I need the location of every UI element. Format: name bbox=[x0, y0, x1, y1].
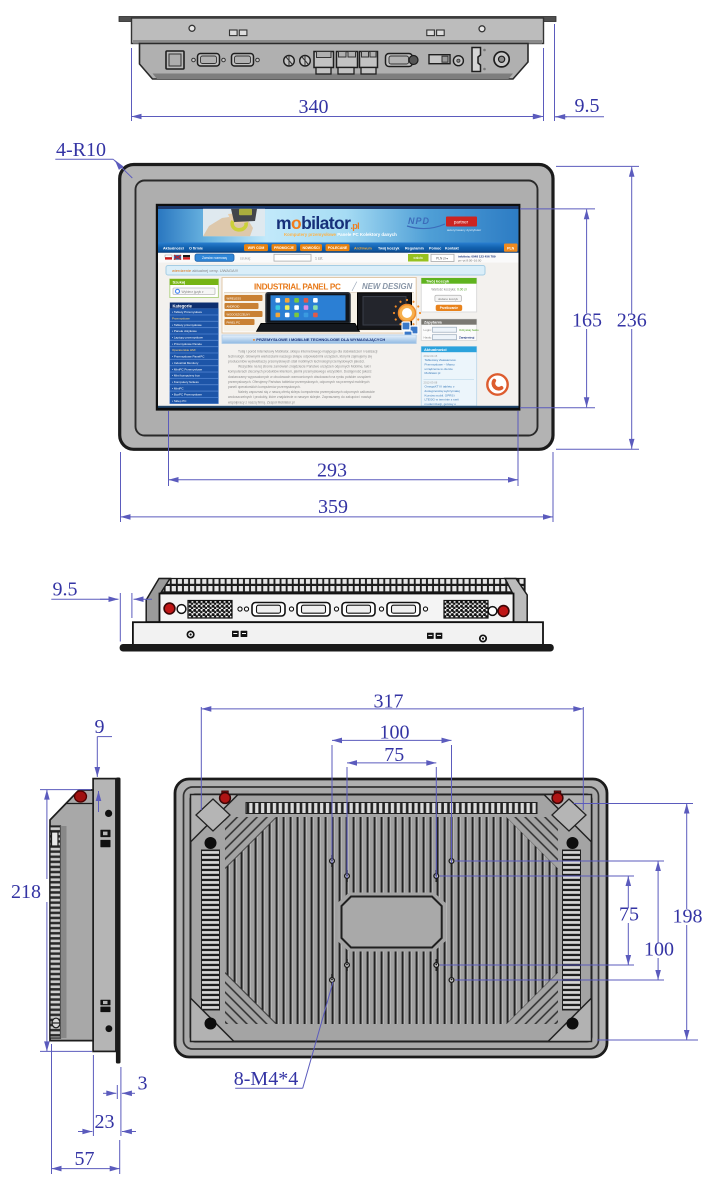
svg-text:75: 75 bbox=[384, 744, 404, 766]
svg-text:4-R10: 4-R10 bbox=[56, 139, 106, 161]
svg-text:WODOSZCZELNY: WODOSZCZELNY bbox=[227, 312, 251, 316]
svg-text:waluta: waluta bbox=[413, 256, 422, 260]
svg-text:100: 100 bbox=[380, 722, 410, 744]
svg-text:ANDROID: ANDROID bbox=[227, 304, 240, 308]
svg-text:• Tablety przemysłowe: • Tablety przemysłowe bbox=[172, 323, 202, 327]
svg-text:PLN: PLN bbox=[507, 246, 515, 250]
svg-text:Zarejestruj: Zarejestruj bbox=[459, 335, 475, 339]
svg-text:● PRZEMYSŁOWE I MOBILNE TECHNO: ● PRZEMYSŁOWE I MOBILNE TECHNOLOGIE DLA … bbox=[253, 337, 386, 342]
svg-text:• BoxPC Przemysłowe: • BoxPC Przemysłowe bbox=[172, 393, 202, 397]
svg-text:Kontakt: Kontakt bbox=[445, 246, 459, 250]
svg-text:Mobilator.pl: Mobilator.pl bbox=[425, 371, 441, 375]
svg-text:• MiniPC: • MiniPC bbox=[172, 386, 184, 390]
svg-text:Wszystkie na tej stronie zamów: Wszystkie na tej stronie zamówień znajdz… bbox=[238, 365, 371, 369]
svg-text:Aktualności: Aktualności bbox=[424, 347, 447, 352]
svg-text:198: 198 bbox=[673, 906, 703, 928]
svg-text:NPD: NPD bbox=[408, 216, 430, 226]
svg-text:Kursów mobil. GPRS i: Kursów mobil. GPRS i bbox=[425, 393, 456, 397]
svg-text:165: 165 bbox=[572, 309, 602, 331]
svg-text:PROMOCJE: PROMOCJE bbox=[274, 246, 295, 250]
svg-text:Wartość koszyka: 0.00 zł: Wartość koszyka: 0.00 zł bbox=[431, 288, 466, 292]
svg-text:dostarczamy wyposażonych w obu: dostarczamy wyposażonych w obudowach wzm… bbox=[228, 375, 371, 379]
svg-text:WIFI COM: WIFI COM bbox=[248, 246, 265, 250]
svg-text:359: 359 bbox=[318, 496, 348, 518]
svg-text:INDUSTRIAL PANEL PC: INDUSTRIAL PANEL PC bbox=[254, 283, 341, 292]
svg-text:236: 236 bbox=[617, 309, 647, 331]
svg-text:Aktualności: Aktualności bbox=[163, 246, 184, 250]
svg-text:WIRELESS: WIRELESS bbox=[227, 296, 242, 300]
svg-text:• MiniPC Przemysłowe: • MiniPC Przemysłowe bbox=[172, 367, 203, 371]
svg-text:317: 317 bbox=[374, 691, 404, 713]
svg-text:Pomoc: Pomoc bbox=[429, 246, 441, 250]
svg-text:• Laptopy przemysłowe: • Laptopy przemysłowe bbox=[172, 336, 203, 340]
svg-text:Operatorskie HMI: Operatorskie HMI bbox=[172, 348, 196, 352]
svg-text:• Panele dotykowe: • Panele dotykowe bbox=[172, 329, 197, 333]
svg-text:218: 218 bbox=[11, 881, 41, 903]
svg-text:1 szt.: 1 szt. bbox=[315, 256, 323, 260]
svg-text:Przeliczanie: Przeliczanie bbox=[440, 306, 458, 310]
svg-text:komputerach zleconych produktó: komputerach zleconych produktów klientom… bbox=[228, 370, 372, 374]
svg-text:Tutaj i poród Internetowy Mobi: Tutaj i poród Internetowy Mobilator, skl… bbox=[238, 349, 378, 353]
svg-text:modernizacji, gotowy o: modernizacji, gotowy o bbox=[425, 402, 457, 406]
svg-text:57: 57 bbox=[75, 1148, 95, 1170]
svg-text:Login:: Login: bbox=[424, 328, 432, 332]
svg-text:• Przemysłowe Panele: • Przemysłowe Panele bbox=[172, 342, 202, 346]
svg-text:urządzenia w ofercie: urządzenia w ofercie bbox=[425, 367, 454, 371]
svg-text:LTE/3G w terminie z serii: LTE/3G w terminie z serii bbox=[425, 398, 460, 402]
svg-text:Twój koszyk: Twój koszyk bbox=[426, 279, 450, 284]
svg-text:8-M4*4: 8-M4*4 bbox=[234, 1068, 298, 1090]
svg-text:dostępnością wytrzymałej: dostępnością wytrzymałej bbox=[425, 389, 461, 393]
svg-text:pn–pt 8:00–16:00: pn–pt 8:00–16:00 bbox=[458, 258, 482, 262]
svg-text:9.5: 9.5 bbox=[575, 95, 600, 117]
svg-text:75: 75 bbox=[619, 904, 639, 926]
svg-text:Szukaj: Szukaj bbox=[173, 280, 186, 285]
svg-text:PANEL PC: PANEL PC bbox=[227, 320, 241, 324]
svg-text:wierdzenie aktualnej ceny. UWA: wierdzenie aktualnej ceny. UWAGA!!! bbox=[172, 268, 238, 273]
svg-text:Tabletowy Zaawansow.: Tabletowy Zaawansow. bbox=[425, 358, 457, 362]
svg-text:340: 340 bbox=[299, 96, 329, 118]
svg-text:• Przemysłowe PanelPC: • Przemysłowe PanelPC bbox=[172, 355, 205, 359]
svg-text:Wybierz język ▾: Wybierz język ▾ bbox=[182, 290, 205, 294]
svg-text:NEW DESIGN: NEW DESIGN bbox=[362, 282, 413, 291]
svg-text:POLECANE: POLECANE bbox=[328, 246, 348, 250]
svg-text:3: 3 bbox=[138, 1073, 148, 1095]
svg-text:szukaj:: szukaj: bbox=[240, 256, 251, 260]
svg-text:wodoszczelnych i produkty, któ: wodoszczelnych i produkty, które znajdzi… bbox=[228, 395, 372, 399]
svg-text:Kategorie: Kategorie bbox=[173, 303, 193, 308]
svg-text:• Mini komputery box: • Mini komputery box bbox=[172, 374, 200, 378]
svg-text:Archiwum: Archiwum bbox=[354, 246, 373, 250]
svg-text:293: 293 bbox=[317, 459, 347, 481]
svg-text:9: 9 bbox=[95, 716, 105, 738]
svg-text:Regulamin: Regulamin bbox=[405, 246, 425, 250]
svg-text:technologii. Głównymi wartości: technologii. Głównymi wartościami naszeg… bbox=[228, 354, 372, 358]
svg-text:• Sklep PC: • Sklep PC bbox=[172, 399, 187, 403]
svg-text:Twój koszyk: Twój koszyk bbox=[378, 246, 400, 250]
svg-text:PLN zł ▾: PLN zł ▾ bbox=[436, 256, 448, 260]
svg-text:Zapytania: Zapytania bbox=[424, 321, 443, 325]
svg-text:OmegaXT III tabletu z: OmegaXT III tabletu z bbox=[425, 385, 455, 389]
svg-text:paneli operatorskich komputeró: paneli operatorskich komputerów przemysł… bbox=[228, 385, 301, 389]
svg-text:• Tablety Przemysłowe: • Tablety Przemysłowe bbox=[172, 310, 202, 314]
svg-text:producentów wyświetlaczy przem: producentów wyświetlaczy przemysłowych s… bbox=[228, 360, 365, 364]
svg-text:Należy zapoznać się z naszą of: Należy zapoznać się z naszą ofertą sklep… bbox=[238, 390, 375, 394]
svg-text:• Industrial Monitory: • Industrial Monitory bbox=[172, 361, 199, 365]
svg-text:współpracy z naszą firmą. Zesp: współpracy z naszą firmą. Zespół Mobilat… bbox=[228, 400, 295, 404]
svg-text:100: 100 bbox=[644, 939, 674, 961]
svg-text:O firmie: O firmie bbox=[189, 246, 203, 250]
svg-text:dodano koszyk: dodano koszyk bbox=[438, 297, 459, 301]
svg-text:Hasło:: Hasło: bbox=[424, 335, 433, 339]
svg-text:• Komputery fanless: • Komputery fanless bbox=[172, 380, 199, 384]
svg-text:Komputery przemysłowe Panele P: Komputery przemysłowe Panele PC Kolektor… bbox=[284, 232, 397, 237]
svg-text:Zamów rozmowę: Zamów rozmowę bbox=[202, 256, 227, 260]
svg-text:partner: partner bbox=[454, 220, 469, 225]
svg-text:Przemysłowe – Mamy: Przemysłowe – Mamy bbox=[425, 362, 456, 366]
svg-text:NOWOŚCI: NOWOŚCI bbox=[302, 245, 319, 250]
svg-text:Odzyskaj hasło: Odzyskaj hasło bbox=[459, 328, 479, 332]
svg-text:9.5: 9.5 bbox=[53, 579, 78, 601]
svg-text:przemysłowych. Oferujemy Państ: przemysłowych. Oferujemy Państwu tabletó… bbox=[228, 380, 370, 384]
svg-text:autoryzowany dystrybutor: autoryzowany dystrybutor bbox=[447, 228, 481, 232]
svg-text:mobilator.pl: mobilator.pl bbox=[276, 213, 359, 233]
svg-text:Przemysłowe: Przemysłowe bbox=[172, 316, 190, 320]
svg-text:23: 23 bbox=[95, 1111, 115, 1133]
